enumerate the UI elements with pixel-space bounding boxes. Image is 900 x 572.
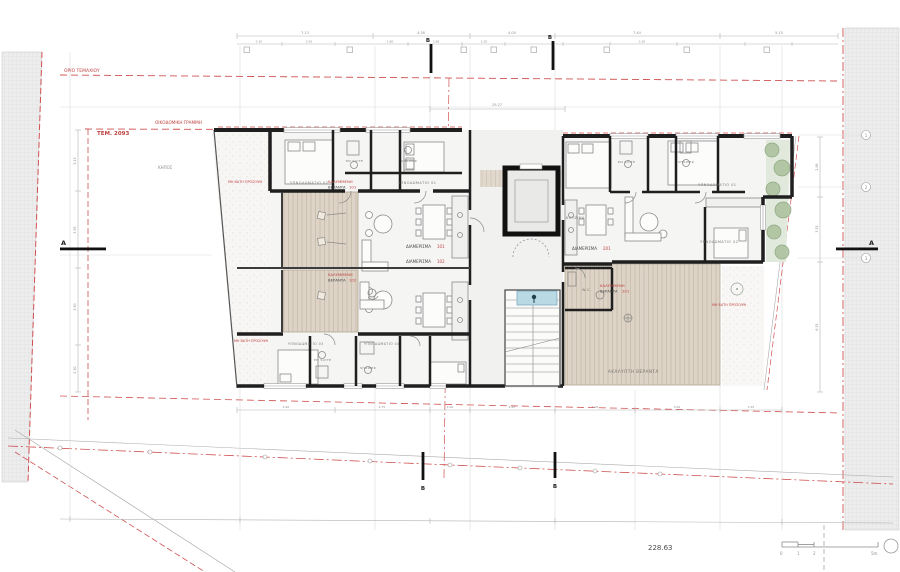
section-a-label: A	[869, 239, 874, 247]
grid-bubble-label: 1	[865, 133, 868, 138]
scale-bar	[782, 542, 878, 547]
dim-value: 29.27	[492, 103, 502, 107]
grid-bubble-label: 2	[865, 185, 868, 190]
bedroom-02-label: ΥΠΝΟΔΩΜΑΤΙΟ 02	[290, 181, 328, 185]
scale-tick-label: 5m	[871, 551, 878, 556]
dim-value: 2.00	[447, 405, 454, 409]
dim-value: 1.80	[387, 40, 394, 44]
dim-value: 4.38	[417, 31, 425, 35]
shower-label: SHOWER	[360, 366, 376, 370]
bedroom-02-label: ΥΠΝΟΔΩΜΑΤΙΟ 02	[700, 240, 738, 244]
bed-icon	[430, 362, 466, 384]
shower-label: SHOWER	[401, 159, 417, 163]
north-symbol	[884, 539, 898, 553]
plot-boundary-label: ΟΡΙΟ ΤΕΜΑΧΙΟΥ	[64, 68, 100, 74]
section-b-label: B	[426, 38, 430, 44]
floor-plan-drawing: 1 2 3	[0, 0, 900, 572]
dim-value: 3.55	[815, 225, 819, 232]
section-b-label: B	[553, 484, 557, 490]
section-b-label: B	[548, 35, 552, 41]
dining-table-icon	[416, 293, 452, 327]
bed-icon	[278, 350, 318, 384]
dim-value: 3.00	[674, 405, 681, 409]
dim-value: 3.90	[73, 303, 77, 310]
dim-value: 3.95	[73, 226, 77, 233]
apartment-201-label: ΔΙΑΜΕΡΙΣΜΑ	[572, 246, 597, 251]
covered-veranda-201-label: ΒΕΡΑΝΤΑ	[600, 289, 618, 294]
scale-tick-label: 1	[797, 551, 800, 556]
ensuite-label: EN SUITE	[618, 160, 635, 164]
section-a-label: A	[61, 239, 66, 247]
non-walkable-label: ΜΗ ΒΑΤΗ ΠΡΟΣΟΨΗ	[228, 180, 263, 184]
covered-veranda-201-number: 201	[622, 289, 630, 294]
shower-label: SHOWER	[678, 160, 694, 164]
dining-table-icon	[416, 205, 452, 239]
covered-veranda-101-number: 101	[349, 185, 357, 190]
bed-icon	[566, 142, 611, 188]
ensuite-label: EN SUITE	[314, 358, 331, 362]
dim-value: 4.00	[508, 31, 516, 35]
staircase	[505, 290, 560, 386]
dim-value: 2.88	[433, 40, 440, 44]
covered-veranda-201-label: ΚΑΛΥΜΜΕΝΗ	[600, 283, 625, 288]
kitchen-label: ΚΟΥΖΙΝΑ	[566, 216, 585, 220]
scale-tick-label: 0	[780, 551, 783, 556]
dim-value: 2.35	[748, 405, 755, 409]
non-walkable-label: ΜΗ ΒΑΤΗ ΠΡΟΣΟΨΗ	[712, 303, 747, 307]
wc-label: W.C.	[582, 288, 591, 292]
elevator-shaft	[505, 168, 558, 234]
dim-value: 3.30	[639, 40, 646, 44]
bedroom-01-label: ΥΠΝΟΔΩΜΑΤΙΟ 01	[698, 183, 736, 187]
dim-value: 2.20	[481, 40, 488, 44]
covered-veranda-102-label: ΚΑΛΥΜΜΕΝΗ	[328, 272, 353, 277]
dim-value: 4.25	[509, 405, 516, 409]
section-b-label: B	[421, 486, 425, 492]
dim-value: 3.13	[73, 157, 77, 164]
dim-value: 4.75	[379, 405, 386, 409]
dim-value: 2.10	[256, 40, 263, 44]
title-strip: 228.63 0 1 2 5m	[648, 539, 898, 556]
covered-veranda-101-label: ΒΕΡΑΝΤΑ	[328, 185, 346, 190]
site-hatched-band-left	[2, 52, 42, 482]
dim-value: 6.55	[815, 323, 819, 330]
covered-veranda-102-label: ΒΕΡΑΝΤΑ	[328, 278, 346, 283]
dim-value: 2.88	[815, 163, 819, 170]
non-walkable-label: ΜΗ ΒΑΤΗ ΠΡΟΣΟΨΗ	[234, 339, 269, 343]
parcel-label: ΤΕΜ. 2093	[97, 131, 129, 137]
level-value: 228.63	[648, 544, 673, 552]
grid-markers-top	[244, 47, 770, 53]
floor-plan-canvas: 1 2 3	[0, 0, 900, 572]
bed-icon	[404, 142, 444, 172]
covered-veranda-102-number: 102	[349, 278, 357, 283]
stair-landing-highlight	[517, 291, 557, 305]
apartment-102-number: 102	[437, 259, 445, 264]
dim-value: 5.15	[775, 31, 783, 35]
apartment-102-label: ΔΙΑΜΕΡΙΣΜΑ	[406, 259, 431, 264]
building-line-label: ΟΙΚΟΔΟΜΙΚΗ ΓΡΑΜΜΗ	[155, 120, 202, 125]
site-boundary-lines-bottom	[8, 430, 893, 572]
covered-veranda-101-label: ΚΑΛΥΜΜΕΝΗ	[328, 179, 353, 184]
bedroom-01-label: ΥΠΝΟΔΩΜΑΤΙΟ 01	[398, 181, 436, 185]
dim-value: 7.13	[301, 31, 309, 35]
dim-value: 2.30	[73, 366, 77, 373]
garden-label: ΚΗΠΟΣ	[158, 165, 173, 170]
apartment-101-number: 101	[437, 244, 445, 249]
ensuite-label: EN SUITE	[346, 159, 363, 163]
dim-value: 4.00	[592, 405, 599, 409]
open-veranda-label: ΑΚΑΛΥΠΤΗ ΒΕΡΑΝΤΑ	[608, 369, 659, 374]
scale-tick-label: 2	[813, 551, 816, 556]
site-hatched-band-right	[843, 28, 899, 530]
bedroom-04-label: ΥΠΝΟΔΩΜΑΤΙΟ 04	[364, 342, 400, 346]
bedroom-03-label: ΥΠΝΟΔΩΜΑΤΙΟ 03	[288, 342, 324, 346]
bed-icon	[285, 140, 333, 184]
apartment-201-number: 201	[603, 246, 611, 251]
dim-value: 4.90	[283, 405, 290, 409]
dim-value: 7.44	[633, 31, 642, 35]
grid-bubble-label: 3	[865, 256, 868, 261]
dim-value: 2.55	[306, 40, 313, 44]
apartment-101-label: ΔΙΑΜΕΡΙΣΜΑ	[406, 244, 431, 249]
